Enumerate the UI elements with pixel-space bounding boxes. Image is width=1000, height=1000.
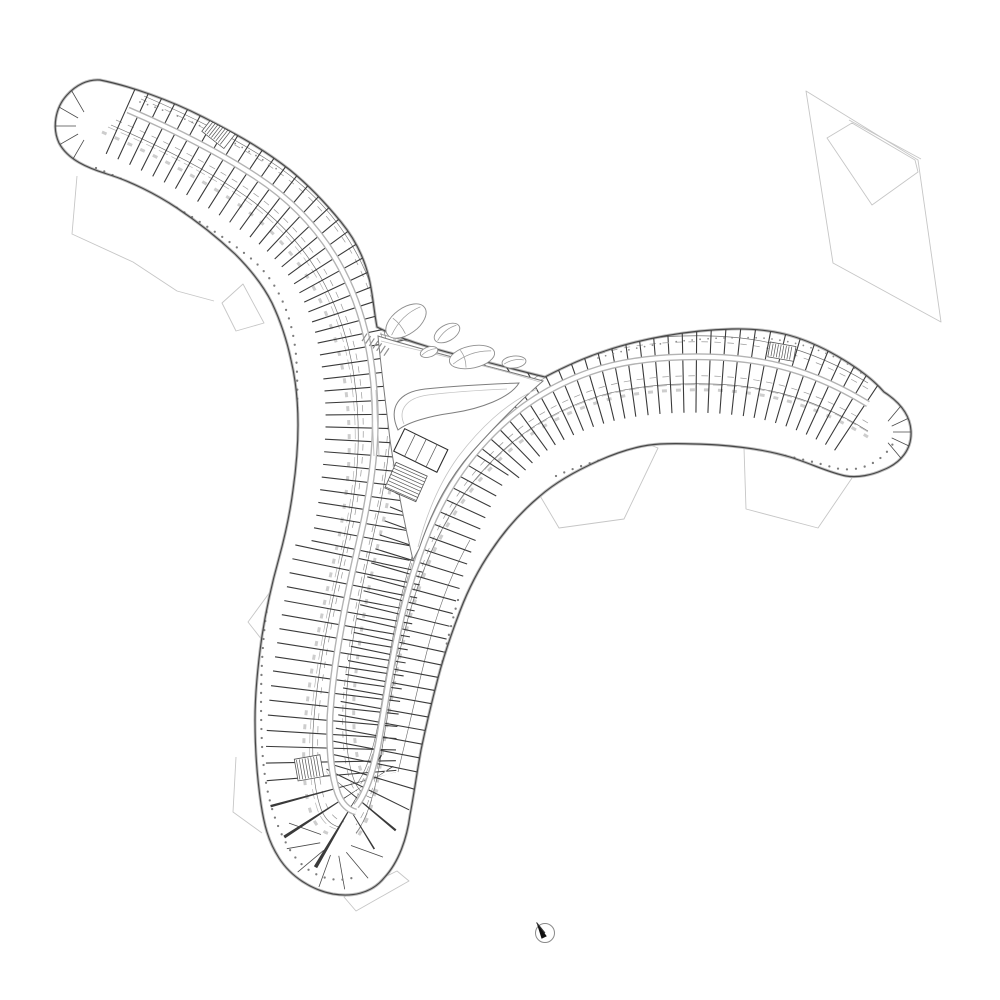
site-outline <box>222 284 264 331</box>
north-arrow-icon <box>536 923 555 943</box>
floor-plan-drawing: Y-shaped building floor plan <box>0 0 1000 1000</box>
parcel-inner-shape <box>827 123 918 205</box>
leaf-planter <box>431 319 463 347</box>
parcel-double-edge <box>849 120 921 159</box>
parcel-outline <box>806 91 941 322</box>
parcel-boundary <box>806 91 941 322</box>
building-footprint <box>55 80 911 895</box>
leaf-planter <box>501 355 526 369</box>
stair-south-wing <box>294 755 323 781</box>
floor-plan-sheet: Y-shaped building floor plan <box>0 0 1000 1000</box>
